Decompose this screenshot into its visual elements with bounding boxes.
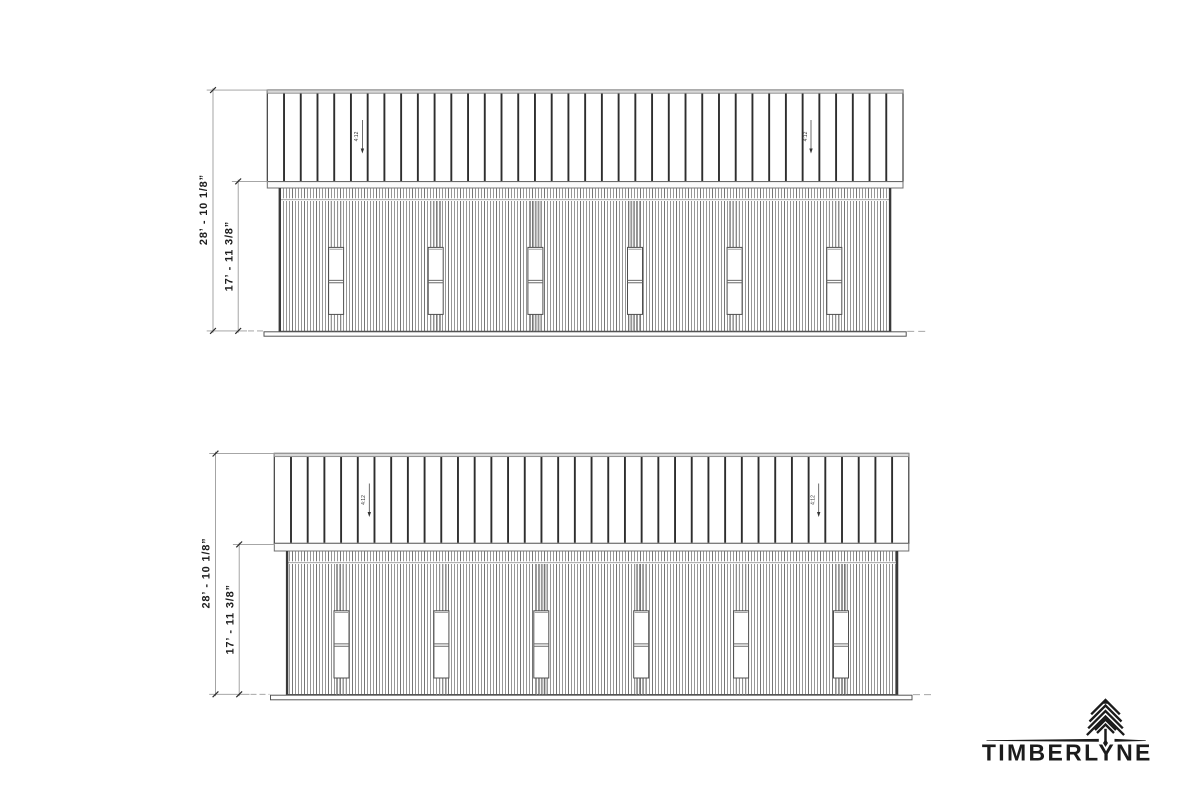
- svg-text:28’ - 10 1/8”: 28’ - 10 1/8”: [201, 538, 213, 609]
- svg-text:4:12: 4:12: [361, 495, 367, 505]
- svg-text:TIMBERLYNE: TIMBERLYNE: [982, 739, 1153, 765]
- svg-text:4:12: 4:12: [811, 495, 817, 505]
- svg-text:4:12: 4:12: [354, 131, 360, 141]
- svg-text:17’ - 11 3/8”: 17’ - 11 3/8”: [224, 584, 236, 654]
- svg-text:28’ - 10 1/8”: 28’ - 10 1/8”: [198, 174, 210, 245]
- svg-text:4:12: 4:12: [803, 131, 809, 141]
- svg-text:17’ - 11 3/8”: 17’ - 11 3/8”: [223, 221, 235, 291]
